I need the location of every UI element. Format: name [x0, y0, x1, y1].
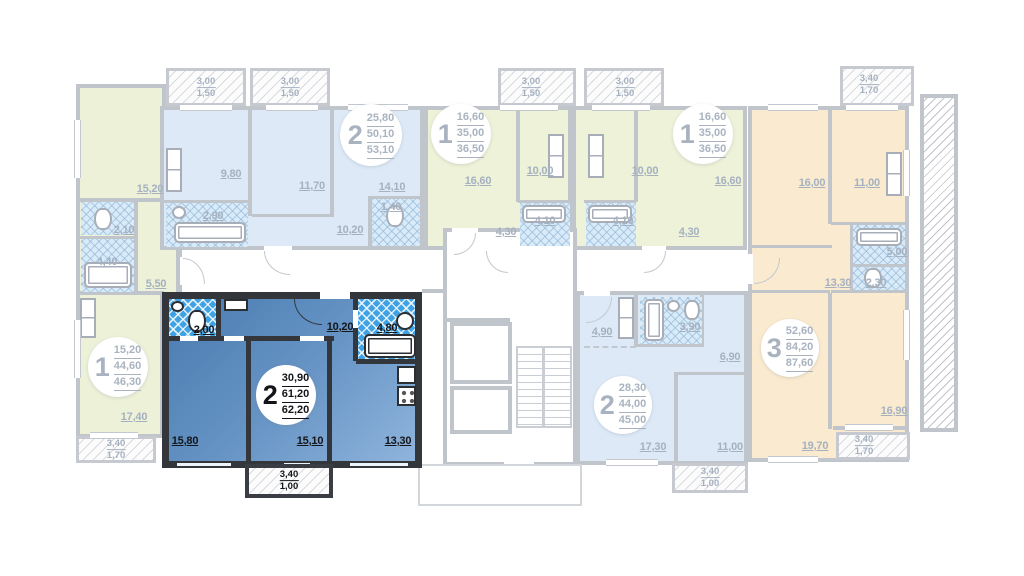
- room-area-label: 5,50: [146, 278, 167, 290]
- door-opening: [353, 310, 358, 328]
- wall: [752, 290, 830, 293]
- room-area-label-selected: 13,30: [385, 435, 412, 447]
- window: [768, 104, 818, 111]
- room-area-label: 4,90: [592, 326, 613, 338]
- room-area-label: 15,20: [137, 183, 164, 195]
- room-area-label-selected: 15,80: [172, 435, 199, 447]
- elevator-shaft: [450, 386, 512, 434]
- room-area-label: 13,30: [825, 277, 852, 289]
- room-area-label: 17,40: [121, 411, 148, 423]
- kitchen-appliances-icon: [80, 298, 96, 338]
- wall: [831, 290, 907, 293]
- room-area-label: 16,60: [465, 175, 492, 187]
- room-area-label: 4,30: [679, 226, 700, 238]
- badge-rooms-count: 1: [438, 119, 453, 150]
- window: [606, 459, 658, 466]
- apartment-badge[interactable]: 2 25,8050,1053,10: [340, 104, 402, 166]
- door-opening: [300, 336, 324, 341]
- badge-rooms-count: 2: [600, 390, 615, 421]
- wall: [634, 110, 638, 202]
- room-area-label: 4,10: [535, 215, 556, 227]
- room-area-label: 11,00: [854, 177, 880, 189]
- room-area-label: 10,20: [337, 224, 364, 236]
- toilet-icon: [94, 208, 112, 230]
- window: [74, 120, 81, 178]
- balcony-area-label: 3,401,70: [107, 438, 126, 462]
- kitchen-appliances-icon: [886, 152, 902, 196]
- balcony-area-label: 3,401,70: [860, 73, 879, 97]
- adjacent-section-hatch: [920, 94, 958, 432]
- room-area-label: 5,00: [887, 246, 908, 258]
- window: [266, 104, 318, 111]
- staircase-divider: [542, 348, 545, 426]
- elevator-shaft: [450, 322, 512, 384]
- wall: [828, 293, 832, 429]
- window: [903, 150, 910, 196]
- entry-door-opening: [320, 292, 350, 299]
- room-area-label: 4,40: [97, 256, 118, 268]
- apartment-badge[interactable]: 1 15,2044,6046,30: [88, 337, 148, 397]
- wall: [216, 299, 221, 336]
- room-area-label: 11,70: [299, 180, 325, 192]
- door-opening: [748, 254, 753, 284]
- door-opening: [452, 228, 478, 232]
- window: [500, 104, 558, 111]
- badge-rooms-count: 1: [680, 119, 695, 150]
- toilet-icon: [684, 300, 700, 320]
- sink-icon: [667, 300, 680, 312]
- room-area-label: 1,40: [381, 201, 402, 213]
- room-area-label: 16,00: [799, 177, 826, 189]
- wall: [422, 289, 447, 293]
- balcony-area-label: 3,001,50: [197, 76, 216, 100]
- room-area-label: 10,00: [527, 165, 554, 177]
- room-area-label: 19,70: [802, 440, 829, 452]
- apartment-badge[interactable]: 2 28,3044,0045,00: [594, 376, 652, 434]
- wall: [638, 344, 704, 347]
- badge-rooms-count: 3: [767, 333, 782, 364]
- room-area-label-selected: 15,10: [297, 435, 324, 447]
- entrance-porch-outline: [418, 464, 582, 506]
- room-area-label: 4,30: [496, 226, 517, 238]
- wall: [176, 247, 180, 293]
- room-area-label: 2,90: [203, 210, 224, 222]
- apartment-badge[interactable]: 3 52,6084,2087,60: [761, 319, 819, 377]
- room-area-label: 4,10: [613, 215, 634, 227]
- room-area-label: 17,30: [640, 441, 667, 453]
- sink-icon: [396, 312, 414, 330]
- room-area-label: 16,90: [881, 405, 908, 417]
- door-swing-arc: [644, 251, 666, 273]
- badge-rooms-count: 2: [263, 380, 278, 411]
- wall: [516, 110, 520, 202]
- badge-rooms-count: 1: [95, 352, 110, 383]
- room-area-label: 3,90: [680, 321, 701, 333]
- door-opening: [180, 336, 198, 341]
- wall: [246, 341, 251, 461]
- room-area-label-selected: 2,00: [194, 324, 215, 336]
- door-opening: [224, 336, 244, 341]
- room-area-label: 6,90: [720, 351, 741, 363]
- stove-icon: [397, 386, 416, 406]
- room-area-label: 11,00: [717, 441, 743, 453]
- kitchen-appliances-icon: [166, 148, 182, 192]
- balcony-area-label: 3,001,50: [522, 76, 541, 100]
- room-area-label: 16,60: [715, 175, 742, 187]
- washer-icon: [224, 299, 248, 311]
- window: [592, 104, 650, 111]
- badge-rooms-count: 2: [348, 120, 363, 151]
- apartment-badge[interactable]: 1 16,6035,0036,50: [673, 104, 733, 164]
- balcony-area-label: 3,001,50: [281, 76, 300, 100]
- room-area-label: 2,10: [114, 224, 135, 236]
- wall: [678, 372, 746, 375]
- window: [350, 461, 408, 468]
- room-area-label: 9,80: [221, 168, 242, 180]
- wall: [134, 202, 138, 294]
- door-swing-arc: [183, 258, 205, 284]
- wall: [353, 299, 358, 361]
- window: [768, 456, 818, 463]
- balcony-area-label: 3,401,70: [855, 434, 874, 458]
- door-opening: [584, 291, 610, 296]
- bathtub-icon: [856, 228, 902, 246]
- wall: [752, 245, 832, 248]
- balcony-area-label: 3,001,50: [616, 76, 635, 100]
- window: [846, 104, 898, 111]
- wall: [330, 110, 334, 214]
- sink-icon: [171, 301, 184, 312]
- wall: [674, 372, 678, 462]
- kitchen-appliances-icon: [588, 134, 604, 178]
- balcony-area-label-selected: 3,401,00: [280, 469, 299, 493]
- apartment-badge[interactable]: 1 16,6035,0036,50: [431, 104, 491, 164]
- kitchen-zone-divider: [584, 346, 636, 348]
- window: [903, 310, 910, 360]
- wall: [252, 214, 334, 217]
- wall: [828, 110, 832, 224]
- fridge-icon: [397, 366, 416, 384]
- window: [180, 104, 232, 111]
- balcony-area-label: 3,401,00: [701, 466, 720, 490]
- room-area-label: 10,00: [632, 165, 659, 177]
- window: [845, 424, 893, 431]
- room-area-label-selected: 10,20: [327, 321, 354, 333]
- room-area-label: 2,30: [866, 277, 887, 289]
- sink-icon: [172, 206, 186, 219]
- room-area-label: 14,10: [379, 181, 406, 193]
- wall: [634, 295, 638, 347]
- apartment-badge-selected[interactable]: 2 30,9061,2062,20: [256, 365, 316, 425]
- floor-plan: 15,20 2,10 4,40 5,50 17,40 9,80 11,70 14…: [0, 0, 1024, 576]
- room-area-label-selected: 4,80: [377, 322, 398, 334]
- bathtub-icon: [644, 299, 664, 341]
- wall: [327, 341, 332, 461]
- window: [74, 320, 81, 378]
- kitchen-appliances-icon: [618, 297, 634, 339]
- bathtub-icon: [174, 222, 246, 243]
- wall: [356, 359, 416, 364]
- door-swing-arc: [264, 251, 290, 275]
- bathtub-icon: [364, 334, 416, 358]
- window: [177, 461, 231, 468]
